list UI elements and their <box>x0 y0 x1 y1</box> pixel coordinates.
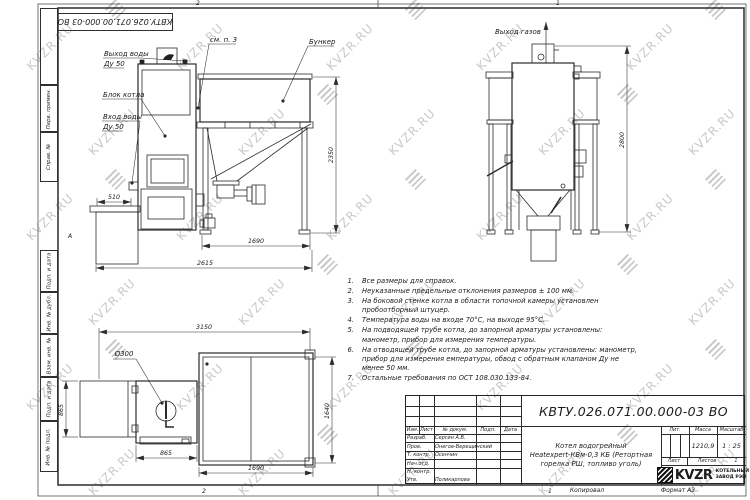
label-diameter: Ø300 <box>114 350 134 358</box>
row-name: Осенчин <box>435 451 458 459</box>
sheets-label: Листов <box>687 457 727 465</box>
copied-label: Копировал <box>560 487 614 494</box>
row-name: Сергин А.В. <box>435 434 466 442</box>
col-data: Дата <box>500 426 521 434</box>
col-list: Лист <box>419 426 434 434</box>
front-view-dimensions <box>96 77 340 272</box>
org-cell: KVZR КОТЕЛЬНЫЙ ЗАВОД РЭП <box>661 465 746 485</box>
margin-cell-inv-dubl: Инв. № дубл. <box>40 292 58 334</box>
row-role: Н. контр. <box>407 468 434 476</box>
label-water-out: Выход воды <box>104 50 149 58</box>
zone-bottom-right: 1 <box>548 488 552 495</box>
title-block: Изм. Лист № докум. Подп. Дата Разраб. Се… <box>405 395 745 484</box>
col-izm: Изм. <box>406 426 419 434</box>
doc-number-stamp: КВТУ.026.071.00.000-03 ВО <box>57 13 173 31</box>
zone-bottom-left: 2 <box>202 488 206 495</box>
scale-label: Масштаб <box>717 426 746 434</box>
note-item: 7.Остальные требования по ОСТ 108.030.13… <box>342 374 640 383</box>
margin-cell-vzam-inv: Взам. инв. № <box>40 334 58 377</box>
notes-block: 1.Все размеры для справок. 2.Неуказанные… <box>342 277 640 384</box>
note-item: 4.Температура воды на входе 70°С, на вых… <box>342 316 640 325</box>
dim-1690-plan: 1690 <box>248 465 264 472</box>
dim-2800: 2800 <box>619 132 626 148</box>
zone-top-left: 2 <box>196 0 200 7</box>
lit-label: Лит. <box>661 426 689 434</box>
col-doc: № докум. <box>434 426 476 434</box>
row-role: Т. контр. <box>407 451 434 459</box>
mass-value: 1210,9 <box>689 434 717 457</box>
front-view <box>90 48 561 264</box>
product-description: Котел водогрейный Heatexpert-КВм-0,3 КБ … <box>521 426 661 485</box>
label-bunker: Бункер <box>309 38 336 46</box>
zone-letter: А <box>68 233 72 240</box>
format-label: Формат А3 <box>652 487 704 494</box>
dim-510: 510 <box>108 194 120 201</box>
product-line2: Heatexpert-КВм-0,3 КБ (Ретортная <box>530 451 652 460</box>
zone-top-right: 1 <box>556 0 560 7</box>
margin-cell-podp-data-2: Подп. и дата <box>40 377 58 421</box>
dim-2615: 2615 <box>197 260 213 267</box>
product-line1: Котел водогрейный <box>555 442 626 451</box>
sheets-value: 1 <box>727 457 745 465</box>
drawing-sheet: KVZR.RUKVZR.RUKVZR.RUKVZR.RUKVZR.RUKVZR.… <box>0 0 750 500</box>
label-gas-out: Выход газов <box>495 28 541 36</box>
sheet-label: Лист <box>661 457 687 465</box>
label-water-in: Вход воды <box>103 113 143 121</box>
note-item: 3.На боковой стенке котла в области топо… <box>342 297 640 315</box>
doc-number: КВТУ.026.071.00.000-03 ВО <box>521 396 746 426</box>
plan-view <box>80 350 315 467</box>
mass-label: Масса <box>689 426 717 434</box>
dim-1640: 1640 <box>324 403 331 419</box>
front-view-texts: Выход воды Ду 50 Блок котла Вход воды Ду… <box>102 36 336 131</box>
note-item: 6.На отводящей трубе котла, до запорной … <box>342 346 640 373</box>
label-boiler-block: Блок котла <box>103 91 144 99</box>
col-podp: Подп. <box>476 426 500 434</box>
row-role: Нач.отд. <box>407 459 434 468</box>
dim-1690-front: 1690 <box>248 238 264 245</box>
dim-3150: 3150 <box>196 324 212 331</box>
dim-2350: 2350 <box>328 147 335 163</box>
scale-value: 1 : 25 <box>717 434 746 457</box>
kvzr-logo-icon <box>658 468 672 482</box>
margin-cell-inv-podl: Инв. № подл. <box>40 421 58 472</box>
row-role: Разраб. <box>407 434 434 442</box>
front-view-dim-texts: 510 2350 1690 2615 <box>108 147 335 267</box>
kvzr-logo-text: KVZR <box>675 468 713 483</box>
note-item: 5.На подводящей трубе котла, до запорной… <box>342 326 640 344</box>
margin-cell-perv-primen: Перв. примен. <box>40 85 58 132</box>
row-role: Пров. <box>407 442 434 451</box>
note-item: 2.Неуказанные предельные отклонения разм… <box>342 287 640 296</box>
margin-cell-podp-data-1: Подп. и дата <box>40 250 58 292</box>
label-water-out-dn: Ду 50 <box>103 60 125 68</box>
org-name: КОТЕЛЬНЫЙ ЗАВОД РЭП <box>715 469 749 480</box>
note-item: 1.Все размеры для справок. <box>342 277 640 286</box>
side-view <box>486 22 600 261</box>
row-name: Онегов-Верещинский <box>435 442 492 451</box>
product-line3: горелка РШ, топливо уголь) <box>540 460 641 469</box>
row-role: Утв. <box>407 476 434 484</box>
dim-865-left: 865 <box>58 404 65 416</box>
label-see-note: см. п. 3 <box>210 36 237 44</box>
margin-cell-sprav-no: Справ. № <box>40 132 58 182</box>
label-water-in-dn: Ду 50 <box>102 123 124 131</box>
dim-865-bottom: 865 <box>160 450 172 457</box>
margin-cell-empty <box>40 8 58 85</box>
row-name: Поликарпова <box>435 476 470 484</box>
